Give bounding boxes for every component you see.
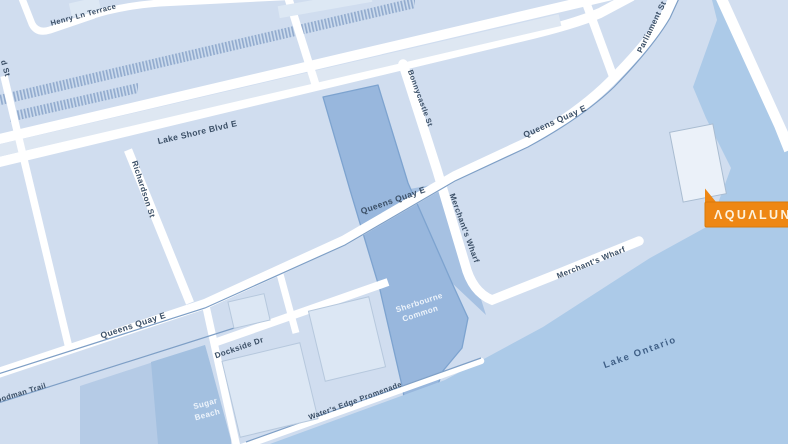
svg-text:ΛQUΛLUNΛ: ΛQUΛLUNΛ	[714, 208, 788, 222]
